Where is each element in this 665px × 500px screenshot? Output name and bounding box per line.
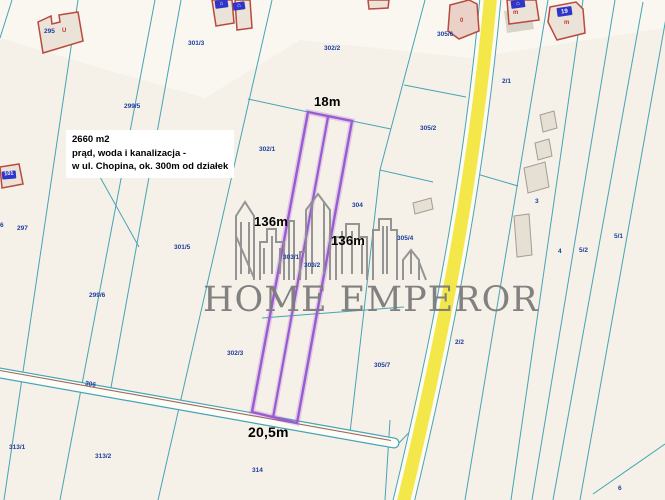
plabel-item: 303/2: [304, 262, 320, 269]
redlbl-item: 0: [460, 18, 463, 24]
plabel-item: 299/5: [124, 103, 140, 110]
measure-item: 136m: [331, 233, 365, 248]
plabel-item: 302/1: [259, 146, 275, 153]
cadastral-map-image: HOME EMPEROR 2660 m2 prąd, woda i kanali…: [0, 0, 665, 500]
plabel-item: 6: [618, 485, 622, 492]
plabel-item: 305/2: [420, 125, 436, 132]
plabel-item: 299/6: [89, 292, 105, 299]
plabel-item: 301/5: [174, 244, 190, 251]
plabel-item: 305/6: [437, 31, 453, 38]
plate-item: ⌂: [233, 1, 246, 11]
plabel-item: 5/1: [614, 233, 623, 240]
measure-item: 20,5m: [248, 424, 289, 440]
side-road-306: [0, 371, 394, 444]
listing-info-box: 2660 m2 prąd, woda i kanalizacja - w ul.…: [66, 130, 234, 178]
plabel-item: 297: [17, 225, 28, 232]
plabel-item: 2/1: [502, 78, 511, 85]
measure-item: 18m: [314, 94, 341, 109]
plabel-item: 6: [0, 222, 4, 229]
plabel-item: 304: [352, 202, 363, 209]
plabel-item: 295: [44, 28, 55, 35]
plabel-item: 303/1: [283, 254, 299, 261]
plabel-item: 301/3: [188, 40, 204, 47]
redlbl-item: m: [564, 20, 569, 26]
plabel-item: 3: [535, 198, 539, 205]
building-top-3: [368, 0, 389, 9]
measure-item: 136m: [254, 214, 288, 229]
plabel-item: 313/1: [9, 444, 25, 451]
parcel-lines: [0, 0, 665, 500]
redlbl-item: U: [62, 28, 66, 34]
plabel-item: 302/2: [324, 45, 340, 52]
plabel-item: 314: [252, 467, 263, 474]
plabel-item: 2/2: [455, 339, 464, 346]
plabel-item: 305/7: [374, 362, 390, 369]
plabel-item: 313/2: [95, 453, 111, 460]
info-area: 2660 m2: [72, 133, 228, 147]
plabel-item: 302/3: [227, 350, 243, 357]
info-utilities: prąd, woda i kanalizacja -: [72, 147, 228, 161]
plabel-item: 4: [558, 248, 562, 255]
plate-item: 101: [2, 170, 17, 179]
redlbl-item: m: [513, 10, 518, 16]
info-street: w ul. Chopina, ok. 300m od działek: [72, 160, 228, 174]
plabel-item: 305/4: [397, 235, 413, 242]
plabel-item: 5/2: [579, 247, 588, 254]
map-canvas: [0, 0, 665, 500]
watermark-text: HOME EMPEROR: [203, 280, 539, 320]
